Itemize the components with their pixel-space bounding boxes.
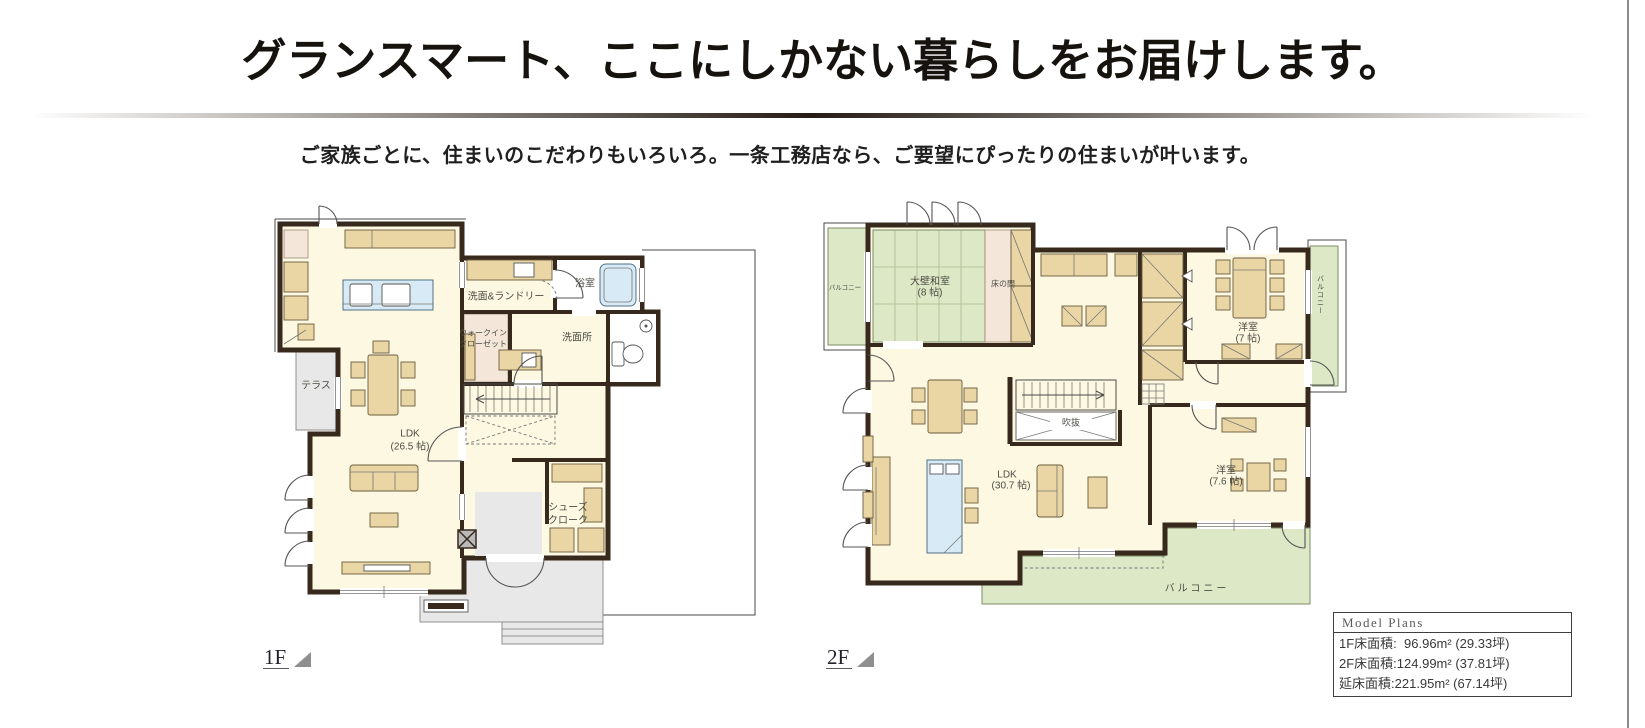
room-label-washroom: 洗面所 [562, 333, 592, 344]
room-label-balcony-bottom: バルコニー [1165, 584, 1230, 595]
room-label-washitsu-1: 大壁和室 [910, 277, 950, 288]
page-title: グランスマート、ここにしかない暮らしをお届けします。 [0, 24, 1645, 89]
room-label-western76-1: 洋室 [1216, 466, 1236, 477]
model-plans-box: Model Plans 1F床面積: 96.96m² (29.33坪) 2F床面… [1333, 612, 1572, 697]
room-label-balcony-left: バルコニー [829, 283, 861, 294]
floor-tag-2f: 2F [826, 646, 874, 669]
page-right-border [1627, 0, 1629, 728]
room-label-ldk1-1: LDK [400, 429, 419, 440]
row-total-value: 221.95m² (67.14坪) [1395, 676, 1508, 691]
room-label-washitsu-2: (8 帖) [918, 288, 943, 299]
row-2f-value: 124.99m² (37.81坪) [1397, 656, 1510, 671]
floor-tag-1f-label: 1F [263, 646, 289, 669]
room-label-ldk2-1: LDK [997, 470, 1016, 481]
room-label-bathroom: 浴室 [575, 279, 595, 290]
floor-tag-1f: 1F [263, 646, 311, 669]
floor-tag-2f-label: 2F [826, 646, 852, 669]
row-1f-value: 96.96m² (29.33坪) [1397, 636, 1510, 651]
page: グランスマート、ここにしかない暮らしをお届けします。 ご家族ごとに、住まいのこだ… [0, 0, 1645, 728]
room-label-western76-2: (7.6 帖) [1209, 477, 1242, 488]
floor-tag-2f-marker-icon [857, 652, 874, 667]
model-plans-title: Model Plans [1334, 613, 1571, 633]
row-2f-label: 2F床面積: [1339, 656, 1397, 671]
model-plans-row-total: 延床面積:221.95m² (67.14坪) [1339, 674, 1566, 694]
room-label-western7-2: (7 帖) [1236, 334, 1261, 345]
floor-tag-1f-marker-icon [294, 652, 311, 667]
room-label-terrace: テラス [301, 381, 331, 392]
room-label-tokonoma: 床の間 [991, 279, 1015, 290]
room-label-wic-2: クローゼット [459, 339, 507, 350]
model-plans-row-1f: 1F床面積: 96.96m² (29.33坪) [1339, 634, 1566, 654]
bathroom-1f [600, 264, 636, 306]
room-label-shoes-1: シューズ [548, 503, 588, 514]
balcony-right-2f [1308, 240, 1346, 392]
room-label-ldk1-2: (26.5 帖) [391, 442, 430, 453]
room-label-ldk2-2: (30.7 帖) [992, 481, 1031, 492]
entrance-pillar-1f [458, 530, 476, 548]
row-total-label: 延床面積: [1339, 676, 1395, 691]
floorplan-1f [252, 192, 762, 662]
room-label-balcony-right: バルコニー [1315, 275, 1326, 315]
room-label-laundry: 洗面&ランドリー [468, 292, 545, 303]
page-subtitle: ご家族ごとに、住まいのこだわりもいろいろ。一条工務店なら、ご要望にぴったりの住ま… [0, 139, 1560, 168]
room-label-shoes-2: クローク [548, 516, 588, 527]
model-plans-row-2f: 2F床面積:124.99m² (37.81坪) [1339, 654, 1566, 674]
room-label-wic-1: ウォークイン [459, 328, 507, 339]
title-divider [30, 113, 1592, 118]
room-label-western7-1: 洋室 [1238, 323, 1258, 334]
row-1f-label: 1F床面積: [1339, 636, 1397, 651]
model-plans-rows: 1F床面積: 96.96m² (29.33坪) 2F床面積:124.99m² (… [1334, 633, 1571, 696]
room-label-void: 吹抜 [1062, 418, 1080, 429]
